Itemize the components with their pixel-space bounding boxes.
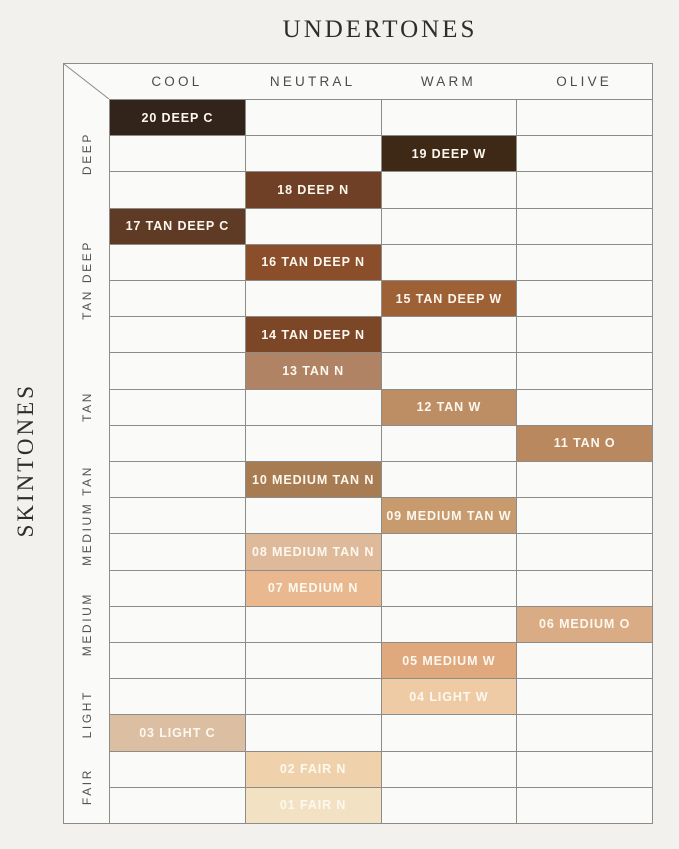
empty-cell (516, 533, 652, 569)
shade-cell-05-medium-w: 05 MEDIUM W (381, 642, 517, 678)
shade-label: 18 DEEP N (277, 183, 349, 197)
shade-cell-17-tan-deep-c: 17 TAN DEEP C (109, 208, 245, 244)
empty-cell (245, 714, 381, 750)
empty-cell (245, 208, 381, 244)
empty-cell (516, 208, 652, 244)
empty-cell (381, 787, 517, 823)
empty-cell (516, 787, 652, 823)
row-group-medium: MEDIUM (64, 570, 109, 679)
empty-cell (245, 678, 381, 714)
empty-cell (109, 606, 245, 642)
shade-label: 14 TAN DEEP N (261, 328, 365, 342)
shade-cell-08-medium-tan-n: 08 MEDIUM TAN N (245, 533, 381, 569)
row-group-deep: DEEP (64, 99, 109, 208)
empty-cell (245, 135, 381, 171)
empty-cell (516, 352, 652, 388)
skintones-axis-title: SKINTONES (6, 98, 46, 823)
empty-cell (516, 316, 652, 352)
shade-cell-18-deep-n: 18 DEEP N (245, 171, 381, 207)
shade-label: 15 TAN DEEP W (396, 292, 502, 306)
empty-cell (516, 714, 652, 750)
empty-cell (381, 316, 517, 352)
shade-cell-11-tan-o: 11 TAN O (516, 425, 652, 461)
undertones-title: UNDERTONES (108, 16, 652, 44)
empty-cell (109, 352, 245, 388)
empty-cell (109, 244, 245, 280)
shade-cell-01-fair-n: 01 FAIR N (245, 787, 381, 823)
column-header-neutral: NEUTRAL (245, 64, 381, 99)
empty-cell (109, 751, 245, 787)
empty-cell (516, 99, 652, 135)
empty-cell (109, 678, 245, 714)
empty-cell (109, 316, 245, 352)
empty-cell (109, 787, 245, 823)
empty-cell (245, 606, 381, 642)
corner-cell (64, 64, 109, 99)
column-header-olive: OLIVE (516, 64, 652, 99)
shade-label: 16 TAN DEEP N (261, 255, 365, 269)
shade-label: 04 LIGHT W (409, 690, 488, 704)
empty-cell (516, 244, 652, 280)
empty-cell (381, 570, 517, 606)
empty-cell (516, 461, 652, 497)
shade-label: 12 TAN W (417, 400, 482, 414)
shade-cell-12-tan-w: 12 TAN W (381, 389, 517, 425)
empty-cell (381, 461, 517, 497)
empty-cell (109, 135, 245, 171)
empty-cell (381, 751, 517, 787)
empty-cell (245, 99, 381, 135)
empty-cell (516, 497, 652, 533)
shade-cell-15-tan-deep-w: 15 TAN DEEP W (381, 280, 517, 316)
empty-cell (109, 570, 245, 606)
shade-cell-03-light-c: 03 LIGHT C (109, 714, 245, 750)
shade-label: 09 MEDIUM TAN W (386, 509, 511, 523)
shade-label: 10 MEDIUM TAN N (252, 473, 374, 487)
column-header-cool: COOL (109, 64, 245, 99)
empty-cell (381, 714, 517, 750)
shade-cell-20-deep-c: 20 DEEP C (109, 99, 245, 135)
empty-cell (516, 678, 652, 714)
empty-cell (516, 171, 652, 207)
empty-cell (516, 570, 652, 606)
shade-cell-14-tan-deep-n: 14 TAN DEEP N (245, 316, 381, 352)
shade-cell-06-medium-o: 06 MEDIUM O (516, 606, 652, 642)
empty-cell (109, 533, 245, 569)
shade-chart-page: UNDERTONES SKINTONES COOL NEUTRAL WARM O… (0, 0, 679, 849)
shade-cell-02-fair-n: 02 FAIR N (245, 751, 381, 787)
empty-cell (381, 606, 517, 642)
empty-cell (381, 244, 517, 280)
empty-cell (109, 389, 245, 425)
shade-label: 08 MEDIUM TAN N (252, 545, 374, 559)
empty-cell (381, 171, 517, 207)
empty-cell (109, 461, 245, 497)
empty-cell (109, 642, 245, 678)
shade-label: 17 TAN DEEP C (126, 219, 230, 233)
empty-cell (245, 280, 381, 316)
empty-cell (381, 533, 517, 569)
empty-cell (109, 497, 245, 533)
empty-cell (245, 389, 381, 425)
row-group-fair: FAIR (64, 751, 109, 823)
empty-cell (381, 425, 517, 461)
empty-cell (516, 135, 652, 171)
shade-label: 03 LIGHT C (139, 726, 215, 740)
shade-cell-19-deep-w: 19 DEEP W (381, 135, 517, 171)
column-header-warm: WARM (381, 64, 517, 99)
shade-cell-16-tan-deep-n: 16 TAN DEEP N (245, 244, 381, 280)
row-group-tan: TAN (64, 352, 109, 461)
empty-cell (109, 425, 245, 461)
shade-label: 19 DEEP W (412, 147, 487, 161)
shade-label: 02 FAIR N (280, 762, 346, 776)
shade-label: 13 TAN N (282, 364, 344, 378)
empty-cell (516, 280, 652, 316)
shade-grid: COOL NEUTRAL WARM OLIVE DEEP TAN DEEP TA… (63, 63, 653, 824)
shade-label: 05 MEDIUM W (402, 654, 495, 668)
shade-label: 20 DEEP C (141, 111, 213, 125)
shade-cell-10-medium-tan-n: 10 MEDIUM TAN N (245, 461, 381, 497)
shade-cell-09-medium-tan-w: 09 MEDIUM TAN W (381, 497, 517, 533)
shade-cell-13-tan-n: 13 TAN N (245, 352, 381, 388)
shade-label: 11 TAN O (554, 436, 616, 450)
shade-label: 07 MEDIUM N (268, 581, 358, 595)
row-group-light: LIGHT (64, 678, 109, 750)
empty-cell (381, 208, 517, 244)
empty-cell (109, 171, 245, 207)
row-group-medium-tan: MEDIUM TAN (64, 461, 109, 570)
empty-cell (516, 751, 652, 787)
row-group-tan-deep: TAN DEEP (64, 208, 109, 353)
empty-cell (381, 99, 517, 135)
empty-cell (245, 497, 381, 533)
empty-cell (245, 642, 381, 678)
shade-cell-04-light-w: 04 LIGHT W (381, 678, 517, 714)
shade-cell-07-medium-n: 07 MEDIUM N (245, 570, 381, 606)
empty-cell (516, 642, 652, 678)
empty-cell (516, 389, 652, 425)
empty-cell (381, 352, 517, 388)
empty-cell (245, 425, 381, 461)
shade-label: 01 FAIR N (280, 798, 346, 812)
empty-cell (109, 280, 245, 316)
shade-label: 06 MEDIUM O (539, 617, 630, 631)
diagonal-line (64, 64, 109, 99)
